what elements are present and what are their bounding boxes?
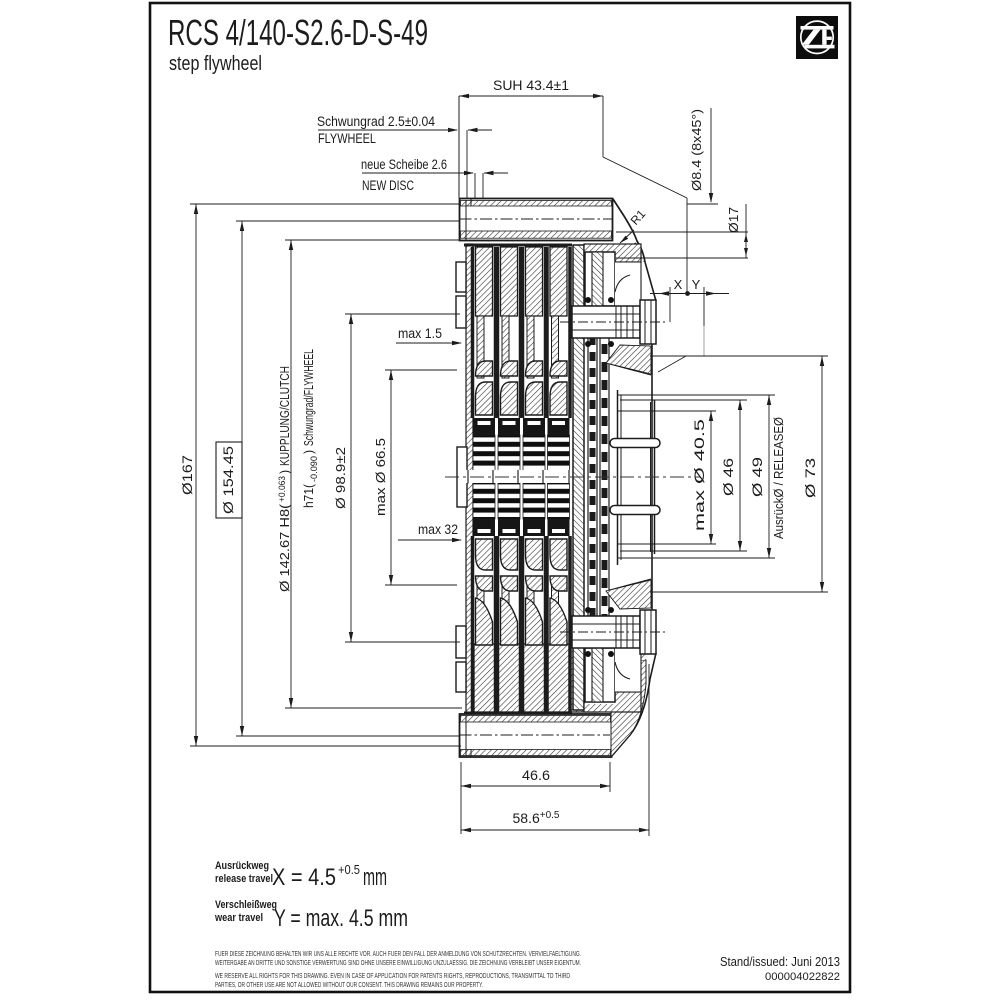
- svg-text:Stand/issued: Juni 2013: Stand/issued: Juni 2013: [720, 954, 840, 969]
- svg-text:release travel: release travel: [215, 873, 273, 885]
- svg-text:FLYWHEEL: FLYWHEEL: [318, 131, 376, 146]
- svg-text:X: X: [674, 277, 683, 292]
- svg-text:Ø 154.45: Ø 154.45: [221, 446, 236, 514]
- svg-text:Ø 49: Ø 49: [749, 457, 765, 497]
- svg-text:Ø8.4 (8x45°): Ø8.4 (8x45°): [689, 109, 704, 191]
- svg-text:Ausrückweg: Ausrückweg: [215, 860, 269, 872]
- svg-text:WE RESERVE ALL RIGHTS FOR THIS: WE RESERVE ALL RIGHTS FOR THIS DRAWING. …: [215, 971, 570, 980]
- svg-text:max 1.5: max 1.5: [398, 326, 442, 341]
- svg-text:Y = max. 4.5 mm: Y = max. 4.5 mm: [274, 905, 408, 932]
- svg-text:Ø167: Ø167: [179, 455, 195, 495]
- svg-text:Y: Y: [692, 277, 701, 292]
- svg-text:KUPPLUNG/CLUTCH: KUPPLUNG/CLUTCH: [278, 366, 292, 466]
- svg-text:-0.090: -0.090: [309, 456, 320, 482]
- svg-text:Ø 142.67 H8(: Ø 142.67 H8(: [278, 503, 292, 592]
- svg-text:RCS 4/140-S2.6-D-S-49: RCS 4/140-S2.6-D-S-49: [168, 12, 428, 53]
- svg-text:+0.063: +0.063: [277, 476, 288, 502]
- svg-text:max Ø 66.5: max Ø 66.5: [373, 438, 388, 516]
- svg-text:wear travel: wear travel: [214, 912, 263, 924]
- svg-text:000004022822: 000004022822: [765, 971, 840, 983]
- svg-text:NEW DISC: NEW DISC: [362, 178, 414, 193]
- svg-text:X = 4.5: X = 4.5: [272, 864, 336, 891]
- svg-text:Ø17: Ø17: [726, 207, 741, 233]
- svg-text:step flywheel: step flywheel: [169, 53, 262, 75]
- svg-text:WEITERGABE AN DRITTE UND SONST: WEITERGABE AN DRITTE UND SONSTIGE VERWER…: [215, 958, 581, 967]
- svg-text:h71(: h71(: [302, 483, 316, 508]
- svg-text:Verschleißweg: Verschleißweg: [215, 899, 277, 911]
- svg-text:PARTIES, OR OTHER USE ARE NOT: PARTIES, OR OTHER USE ARE NOT ALLOWED WI…: [215, 980, 483, 989]
- svg-text:46.6: 46.6: [522, 767, 550, 783]
- svg-text:): ): [278, 470, 292, 474]
- svg-text:neue Scheibe 2.6: neue Scheibe 2.6: [361, 157, 447, 172]
- svg-text:Ø 73: Ø 73: [802, 458, 818, 498]
- svg-text:max Ø 40.5: max Ø 40.5: [691, 419, 707, 531]
- svg-text:+0.5: +0.5: [338, 862, 360, 877]
- svg-text:Schwungrad/FLYWHEEL: Schwungrad/FLYWHEEL: [302, 349, 316, 446]
- svg-text:mm: mm: [363, 864, 387, 891]
- svg-text:SUH 43.4±1: SUH 43.4±1: [493, 77, 569, 93]
- svg-text:AusrückØ / RELEASEØ: AusrückØ / RELEASEØ: [772, 417, 786, 539]
- svg-text:FUER DIESE ZEICHNUNG BEHALTEN: FUER DIESE ZEICHNUNG BEHALTEN WIR UNS AL…: [215, 949, 581, 958]
- svg-text:max 32: max 32: [418, 522, 458, 537]
- svg-text:Ø 46: Ø 46: [720, 458, 736, 496]
- svg-text:Schwungrad 2.5±0.04: Schwungrad 2.5±0.04: [317, 114, 435, 129]
- svg-text:Ø 98.9±2: Ø 98.9±2: [333, 447, 348, 509]
- svg-text:): ): [302, 450, 316, 454]
